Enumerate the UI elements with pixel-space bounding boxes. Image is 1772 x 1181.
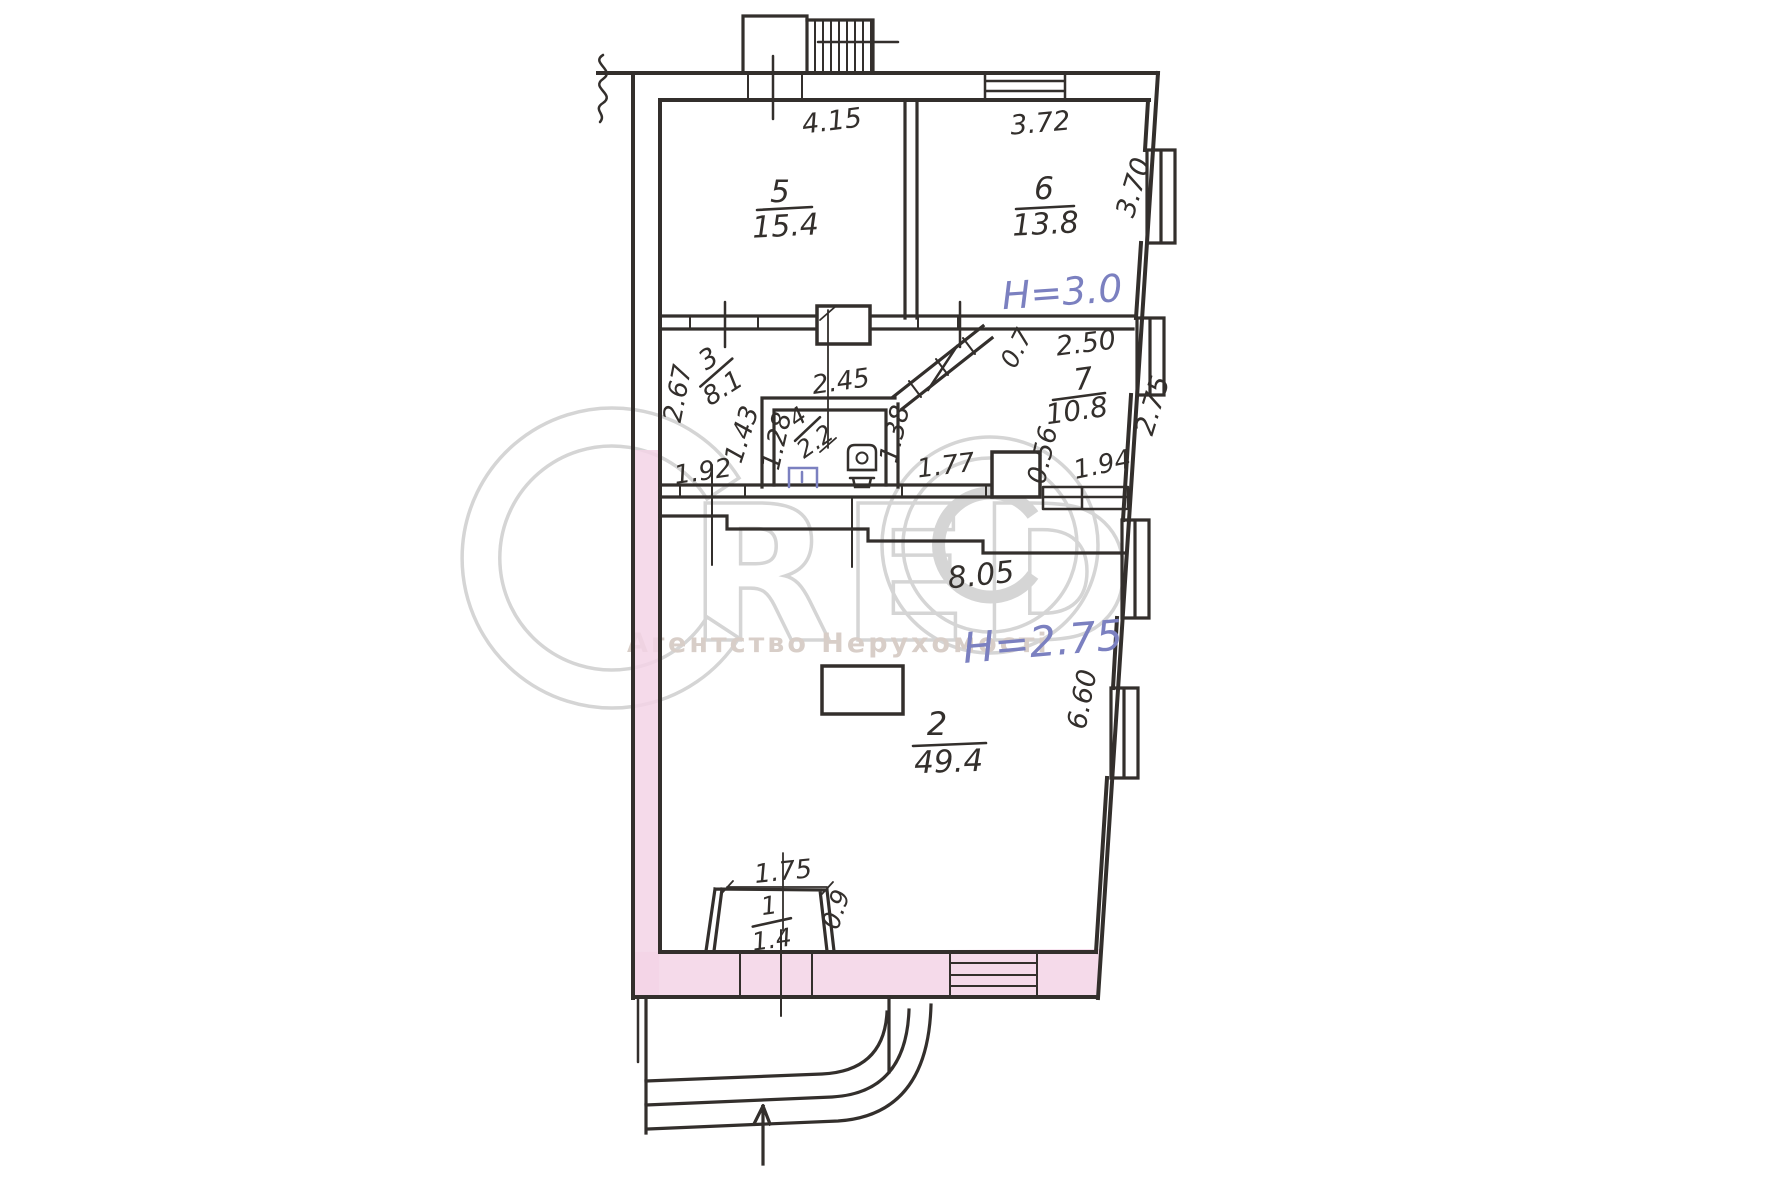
- svg-text:15.4: 15.4: [751, 207, 820, 245]
- room2-column: [822, 666, 903, 714]
- svg-text:10.8: 10.8: [1044, 390, 1110, 431]
- height-note-room6: H=3.0: [1000, 266, 1124, 318]
- dim-vestibule-width: 1.75: [753, 854, 814, 890]
- dim-wc-right: 1.38: [874, 403, 916, 466]
- vent-shaft: [817, 306, 870, 344]
- svg-text:1.4: 1.4: [750, 922, 793, 956]
- bottom-entrance: [638, 853, 931, 1164]
- scanned-floor-plan-page: RED Агентство Нерухомості: [0, 0, 1772, 1181]
- room7-label: 7 10.8: [1044, 361, 1110, 431]
- svg-text:2: 2: [927, 705, 947, 743]
- diagonal-wall: [893, 326, 992, 409]
- floorplan-svg: RED Агентство Нерухомості: [0, 0, 1772, 1181]
- dim-room2-width: 8.05: [946, 555, 1016, 597]
- room1-label: 1 1.4: [745, 888, 795, 956]
- svg-text:49.4: 49.4: [914, 743, 984, 781]
- dim-room5-width: 4.15: [800, 103, 863, 141]
- dim-hall-depth: 2.67: [658, 362, 699, 425]
- left-wall-highlight: [634, 450, 659, 997]
- dim-diag-wall: 0.7: [994, 324, 1038, 373]
- window-top-room6: [985, 73, 1065, 100]
- dim-room6-width: 3.72: [1009, 105, 1072, 141]
- entrance-arrow-icon: [754, 1106, 770, 1164]
- dim-wc-width: 2.45: [810, 363, 872, 401]
- svg-text:13.8: 13.8: [1011, 205, 1080, 243]
- dim-room7-width: 2.50: [1054, 325, 1117, 363]
- svg-text:5: 5: [770, 174, 790, 210]
- room2-label: 2 49.4: [913, 705, 986, 781]
- porch: [646, 997, 931, 1133]
- room6-label: 6 13.8: [1011, 171, 1080, 244]
- svg-text:6: 6: [1034, 171, 1054, 207]
- wall-break-symbol: [599, 55, 607, 122]
- bottom-wall-highlight: [634, 949, 1100, 997]
- stair-hatching: [815, 20, 871, 73]
- chimney-block: [743, 16, 898, 119]
- svg-text:1: 1: [759, 890, 779, 921]
- svg-text:3: 3: [693, 341, 724, 376]
- room5-label: 5 15.4: [751, 174, 820, 246]
